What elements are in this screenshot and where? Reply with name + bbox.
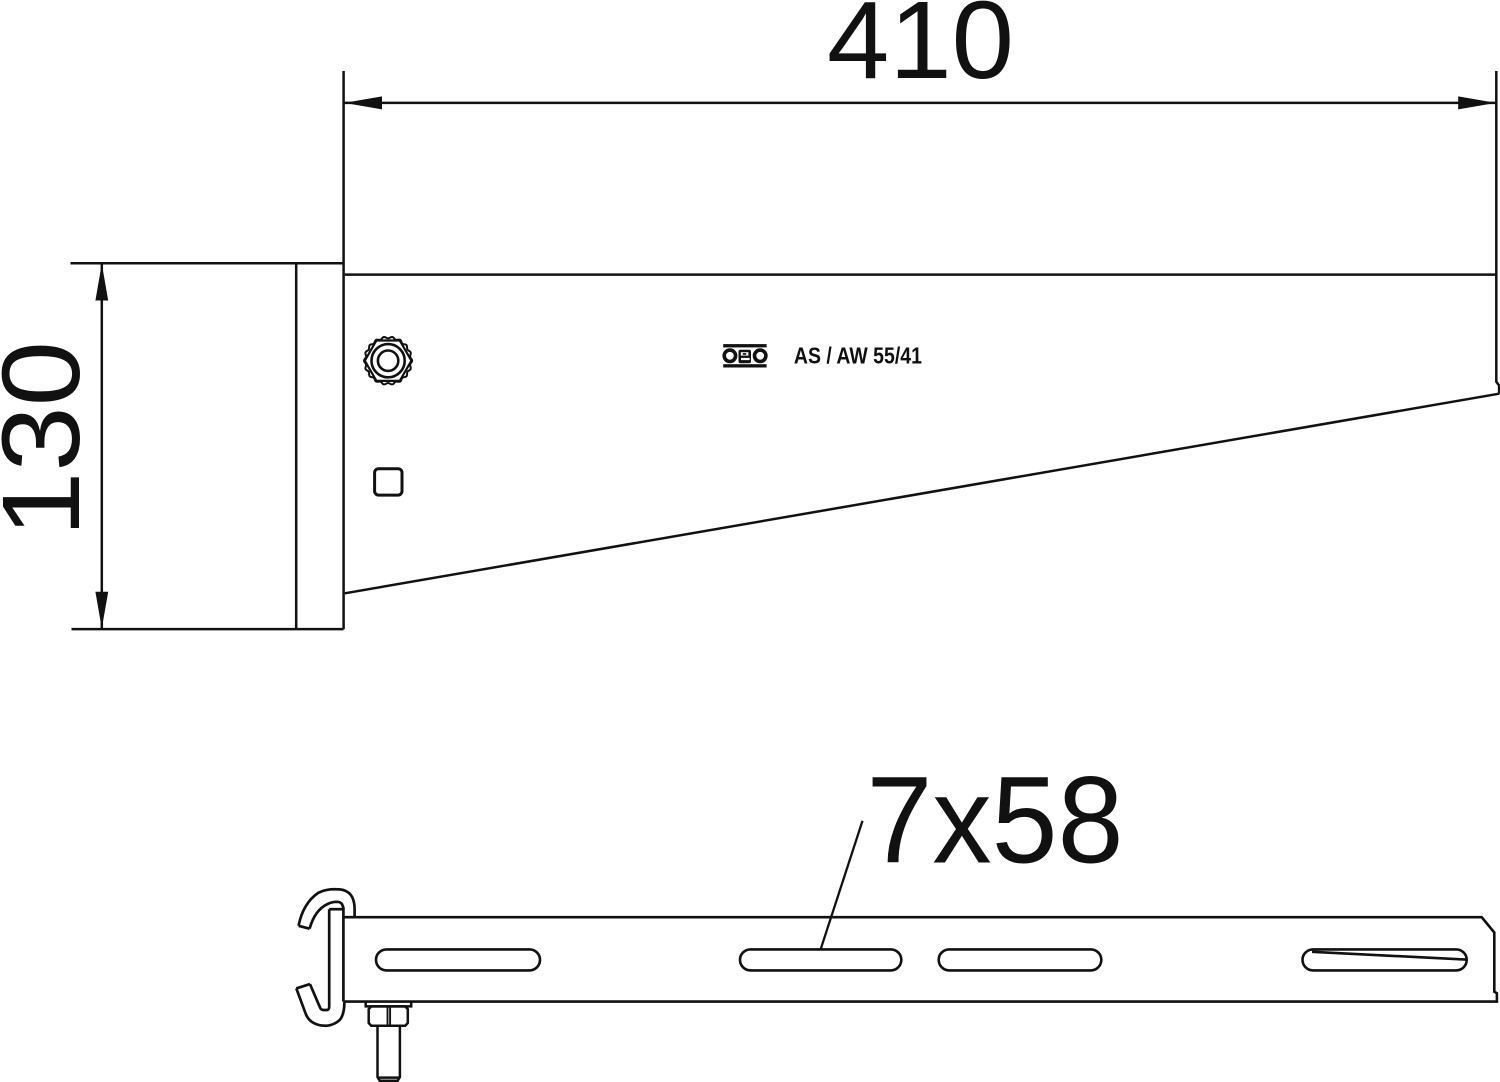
- svg-text:AS / AW 55/41: AS / AW 55/41: [794, 342, 922, 368]
- svg-text:130: 130: [0, 341, 103, 537]
- svg-text:410: 410: [827, 0, 1014, 102]
- svg-text:7x58: 7x58: [867, 753, 1124, 890]
